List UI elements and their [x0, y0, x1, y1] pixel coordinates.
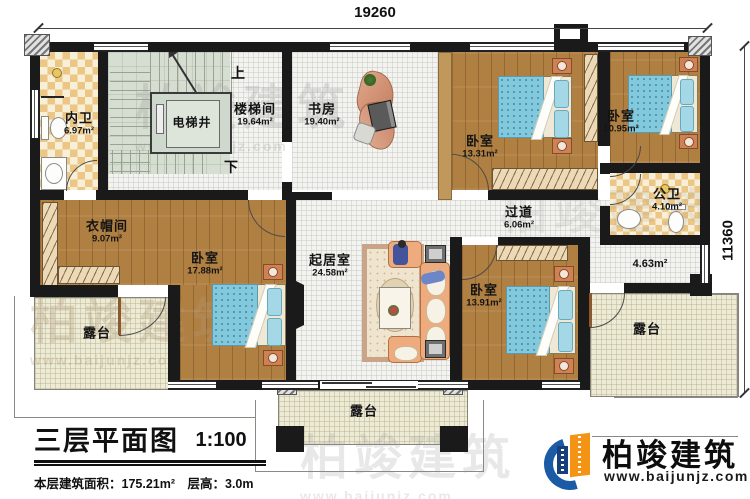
- room-label-stairwell: 楼梯间19.64m²: [234, 102, 276, 127]
- towel-bar: [41, 96, 64, 98]
- flue-inner: [560, 28, 580, 39]
- wall: [700, 42, 710, 245]
- room-label-bedroom1: 卧室13.31m²: [462, 134, 497, 159]
- sofa-cushion: [426, 298, 446, 324]
- dimension-right-value: 11360: [720, 211, 737, 271]
- wardrobe: [496, 245, 568, 261]
- room-label-study: 书房19.40m²: [304, 102, 339, 127]
- room-label-elevator: 电梯井: [172, 116, 211, 129]
- wall: [600, 163, 610, 174]
- eave-outline: [14, 296, 15, 418]
- pillow: [554, 80, 569, 108]
- sink-icon: [617, 209, 641, 229]
- company-website: www.baijunjz.com: [604, 468, 749, 484]
- dimension-top-value: 19260: [340, 4, 410, 21]
- pillow: [558, 290, 573, 320]
- eave-outline: [710, 294, 738, 295]
- wall: [292, 192, 332, 200]
- wall: [498, 237, 590, 245]
- window: [94, 42, 148, 52]
- nightstand: [263, 264, 283, 280]
- pillow: [267, 288, 282, 316]
- elevator-counterweight: [156, 104, 164, 134]
- dimension-right-line: [744, 46, 745, 394]
- logo-building-icon: [570, 433, 590, 477]
- window: [262, 380, 318, 390]
- pillow: [267, 318, 282, 346]
- window: [700, 245, 710, 283]
- tv-icon: [294, 280, 304, 330]
- sink-basin: [45, 163, 63, 184]
- nightstand: [554, 358, 574, 374]
- door-leaf: [589, 293, 592, 327]
- sliding-door-panel: [366, 386, 416, 388]
- plan-title: 三层平面图: [34, 419, 179, 458]
- window: [168, 380, 216, 390]
- pillow: [558, 322, 573, 352]
- plan-scale: 1:100: [195, 429, 246, 452]
- eave-outline: [614, 397, 738, 398]
- closet: [42, 202, 58, 286]
- room-label-hallway: 过道6.06m²: [504, 205, 534, 230]
- wall: [282, 52, 292, 142]
- wall: [96, 190, 248, 200]
- wall: [30, 190, 64, 200]
- eave-outline: [14, 417, 256, 418]
- wardrobe: [584, 54, 598, 142]
- window: [598, 42, 684, 52]
- stair-up-label: 上: [231, 63, 245, 83]
- window: [418, 380, 468, 390]
- wall: [600, 206, 610, 245]
- armchair-cushion: [394, 346, 418, 361]
- eave-outline: [483, 400, 484, 472]
- closet: [58, 266, 120, 284]
- side-table: [425, 340, 446, 358]
- plant-icon: [364, 74, 376, 86]
- nightstand: [679, 134, 698, 149]
- window: [330, 42, 410, 52]
- window: [470, 42, 554, 52]
- wall-wood: [438, 52, 452, 200]
- pillow: [554, 110, 569, 138]
- title-underline: [34, 460, 266, 464]
- nightstand: [552, 138, 572, 154]
- wall-end-hatch: [688, 36, 712, 56]
- pillow: [680, 79, 694, 105]
- wall: [168, 285, 180, 390]
- nightstand: [679, 57, 698, 72]
- room-label-gongwei: 公卫4.10m²: [652, 187, 682, 212]
- wall: [610, 235, 710, 245]
- side-table: [425, 245, 446, 263]
- dimension-top-line: [38, 28, 708, 29]
- person-head: [398, 240, 406, 248]
- toilet-icon: [668, 211, 684, 233]
- wall: [40, 285, 118, 297]
- window: [542, 380, 580, 390]
- stair-down-label: 下: [224, 157, 238, 177]
- room-label-living: 起居室24.58m²: [309, 253, 351, 278]
- company-logo: 柏竣建筑 www.baijunjz.com: [544, 428, 748, 494]
- wall-end-hatch: [24, 34, 50, 56]
- door-leaf: [118, 297, 121, 335]
- room-label-terrace-bottom: 露台: [350, 405, 378, 420]
- terrace-post: [440, 426, 468, 452]
- room-label-terrace-left: 露台: [83, 327, 111, 342]
- room-label-vestibule: 4.63m²: [633, 258, 668, 270]
- room-label-neiwei: 内卫6.97m²: [64, 111, 94, 136]
- nightstand: [552, 58, 572, 74]
- eave-outline: [255, 471, 484, 472]
- wall: [488, 190, 598, 200]
- plan-note: 注：阳台算半面积，露台不算面积: [34, 495, 284, 499]
- ceiling-light-icon: [52, 68, 62, 78]
- room-label-bedroom4: 卧室13.91m²: [466, 283, 501, 308]
- wall: [450, 237, 462, 390]
- logo-building-icon: [557, 446, 568, 474]
- wall: [98, 52, 108, 200]
- floor-plan-page: 柏竣建筑www.baijunjz.com 柏竣建筑www.baijunjz.co…: [0, 0, 750, 499]
- table-flowers: [388, 305, 399, 316]
- room-label-bedroom3: 卧室17.88m²: [187, 251, 222, 276]
- wall: [282, 182, 292, 200]
- toilet-tank: [41, 116, 49, 140]
- room-label-cloakroom: 衣帽间9.07m²: [86, 219, 128, 244]
- wardrobe: [492, 168, 598, 190]
- area-stats: 本层建筑面积：175.21m² 层高：3.0m: [34, 473, 284, 492]
- room-label-terrace-right: 露台: [633, 323, 661, 338]
- eave-outline: [737, 294, 738, 398]
- sliding-door-panel: [322, 382, 372, 384]
- title-block: 三层平面图 1:100 本层建筑面积：175.21m² 层高：3.0m 注：阳台…: [34, 419, 284, 499]
- nightstand: [263, 350, 283, 366]
- room-label-bedroom2: 卧室10.95m²: [603, 109, 638, 134]
- nightstand: [554, 266, 574, 282]
- wall: [30, 42, 40, 297]
- pillow: [680, 106, 694, 132]
- window: [30, 90, 40, 138]
